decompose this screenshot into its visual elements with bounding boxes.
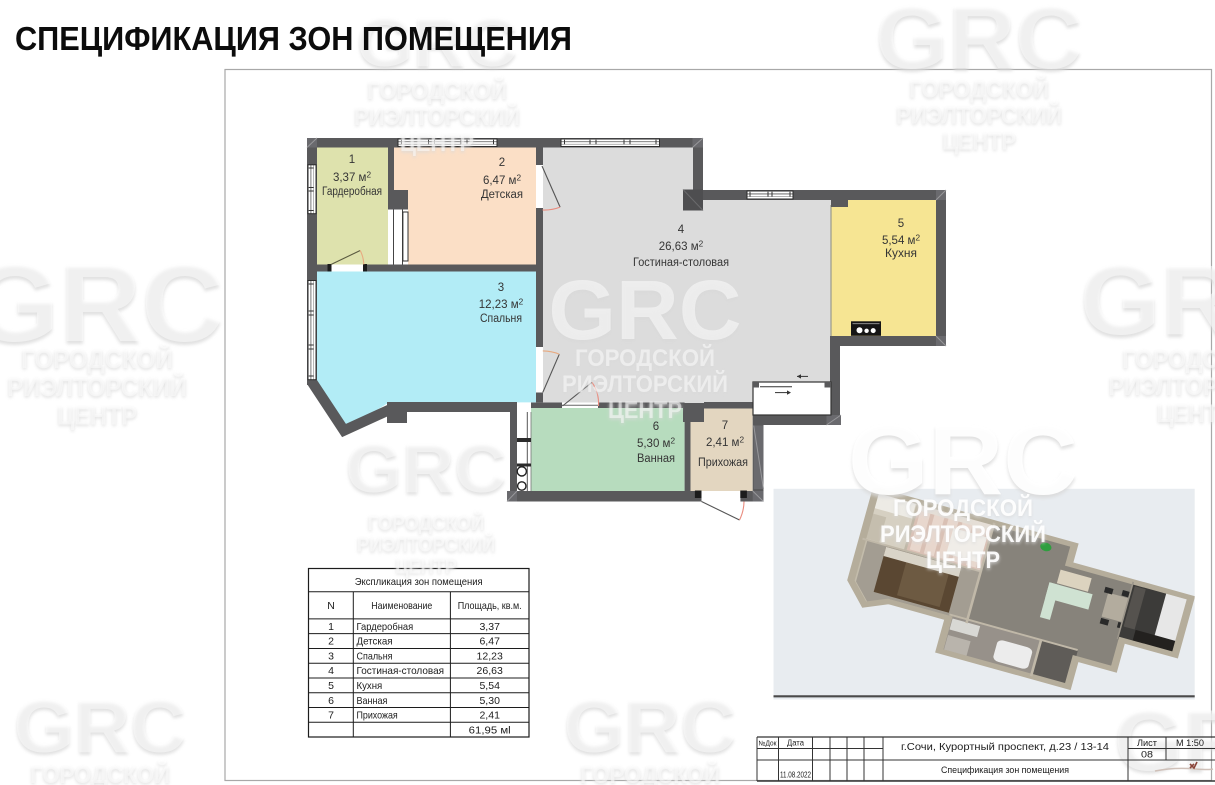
svg-text:ГОРОДСКОЙ: ГОРОДСКОЙ [30, 761, 170, 785]
svg-text:N: N [327, 600, 335, 612]
svg-text:Спальня: Спальня [357, 650, 393, 662]
svg-text:Кухня: Кухня [885, 248, 917, 260]
svg-text:3,37 м2: 3,37 м2 [333, 171, 371, 185]
svg-text:5: 5 [898, 218, 904, 230]
svg-text:ГОРОДСКОЙ: ГОРОДСКОЙ [575, 344, 715, 372]
svg-text:5: 5 [328, 680, 334, 692]
svg-text:ЦЕНТР: ЦЕНТР [1156, 400, 1215, 428]
svg-text:Ванная: Ванная [357, 695, 388, 707]
svg-text:GRC: GRC [1080, 244, 1215, 356]
svg-text:5,30 м2: 5,30 м2 [637, 437, 675, 451]
svg-text:ГОРОДСКОЙ: ГОРОДСКОЙ [909, 76, 1049, 104]
svg-text:GRC: GRC [564, 684, 737, 768]
svg-text:61,95 мl: 61,95 мl [469, 724, 511, 736]
svg-text:Гардеробная: Гардеробная [322, 186, 382, 198]
svg-text:Кухня: Кухня [357, 680, 383, 692]
svg-text:26,63 м2: 26,63 м2 [659, 240, 704, 254]
svg-text:1: 1 [328, 621, 334, 633]
svg-text:Гостиная-столовая: Гостиная-столовая [357, 665, 445, 677]
svg-text:GRC: GRC [548, 263, 741, 357]
svg-text:РИЭЛТОРСКИЙ: РИЭЛТОРСКИЙ [357, 533, 495, 557]
svg-text:ГОРОДСКОЙ: ГОРОДСКОЙ [893, 494, 1033, 522]
svg-text:3: 3 [498, 282, 504, 294]
svg-text:Детская: Детская [357, 636, 393, 648]
svg-text:Дата: Дата [787, 739, 805, 748]
svg-text:Площадь, кв.м.: Площадь, кв.м. [458, 600, 522, 612]
svg-text:ЦЕНТР: ЦЕНТР [400, 130, 474, 157]
svg-text:Прихожая: Прихожая [698, 457, 748, 469]
svg-text:ГОРОДСКОЙ: ГОРОДСКОЙ [580, 761, 720, 785]
svg-text:РИЭЛТОРСКИЙ: РИЭЛТОРСКИЙ [896, 102, 1062, 130]
svg-text:ЦЕНТР: ЦЕНТР [608, 397, 682, 424]
svg-text:5,54 м2: 5,54 м2 [882, 234, 920, 248]
svg-text:Детская: Детская [481, 189, 523, 201]
svg-text:Спальня: Спальня [480, 313, 522, 325]
svg-text:3,37: 3,37 [479, 621, 500, 633]
svg-text:РИЭЛТОРСКИЙ: РИЭЛТОРСКИЙ [7, 372, 187, 402]
svg-text:7: 7 [722, 420, 728, 432]
svg-text:1: 1 [349, 154, 355, 166]
svg-text:ЦЕНТР: ЦЕНТР [942, 129, 1016, 156]
svg-text:GRC: GRC [876, 0, 1083, 88]
svg-text:ГОРОДСКОЙ: ГОРОДСКОЙ [367, 77, 507, 105]
svg-text:М 1:50: М 1:50 [1176, 738, 1204, 749]
svg-text:5,30: 5,30 [479, 695, 500, 707]
svg-text:№Док: №Док [759, 741, 778, 748]
svg-text:5,54: 5,54 [479, 680, 500, 692]
svg-text:ГОРОДСКОЙ: ГОРОДСКОЙ [1122, 344, 1215, 374]
svg-text:12,23: 12,23 [477, 650, 503, 662]
svg-text:ЦЕНТР: ЦЕНТР [395, 556, 457, 578]
svg-text:6,47 м2: 6,47 м2 [483, 174, 521, 188]
svg-text:2: 2 [328, 636, 334, 648]
svg-text:2: 2 [499, 157, 505, 169]
svg-text:СПЕЦИФИКАЦИЯ ЗОН ПОМЕЩЕНИЯ: СПЕЦИФИКАЦИЯ ЗОН ПОМЕЩЕНИЯ [15, 21, 572, 58]
svg-text:Спецификация зон помещения: Спецификация зон помещения [941, 765, 1069, 776]
svg-text:РИЭЛТОРСКИЙ: РИЭЛТОРСКИЙ [1109, 371, 1215, 401]
svg-text:Лист: Лист [1137, 738, 1157, 748]
svg-text:4: 4 [678, 224, 685, 236]
svg-text:12,23 м2: 12,23 м2 [479, 298, 524, 312]
svg-text:6: 6 [328, 695, 334, 707]
svg-text:ГОРОДСКОЙ: ГОРОДСКОЙ [21, 344, 173, 374]
svg-text:2,41 м2: 2,41 м2 [706, 436, 744, 450]
svg-text:7: 7 [328, 710, 334, 722]
svg-text:4: 4 [328, 665, 334, 677]
svg-text:Прихожая: Прихожая [357, 710, 398, 722]
svg-text:GRC: GRC [346, 429, 507, 507]
svg-text:26,63: 26,63 [477, 665, 503, 677]
svg-text:Наименование: Наименование [371, 600, 432, 612]
svg-text:ЦЕНТР: ЦЕНТР [926, 547, 1000, 574]
svg-text:Гардеробная: Гардеробная [357, 621, 414, 633]
svg-text:3: 3 [328, 650, 334, 662]
svg-text:11.08.2022: 11.08.2022 [780, 770, 811, 780]
svg-text:ГОРОДСКОЙ: ГОРОДСКОЙ [368, 511, 485, 535]
svg-text:г.Сочи, Курортный проспект, д.: г.Сочи, Курортный проспект, д.23 / 13-14 [901, 741, 1109, 753]
svg-text:РИЭЛТОРСКИЙ: РИЭЛТОРСКИЙ [880, 520, 1046, 548]
svg-text:РИЭЛТОРСКИЙ: РИЭЛТОРСКИЙ [562, 370, 728, 398]
svg-text:6,47: 6,47 [479, 636, 500, 648]
svg-text:РИЭЛТОРСКИЙ: РИЭЛТОРСКИЙ [354, 103, 520, 131]
svg-text:2,41: 2,41 [479, 710, 500, 722]
svg-text:GRC: GRC [14, 684, 187, 768]
svg-text:Ванная: Ванная [637, 453, 675, 465]
svg-text:08: 08 [1141, 749, 1153, 759]
svg-text:ЦЕНТР: ЦЕНТР [57, 400, 137, 430]
